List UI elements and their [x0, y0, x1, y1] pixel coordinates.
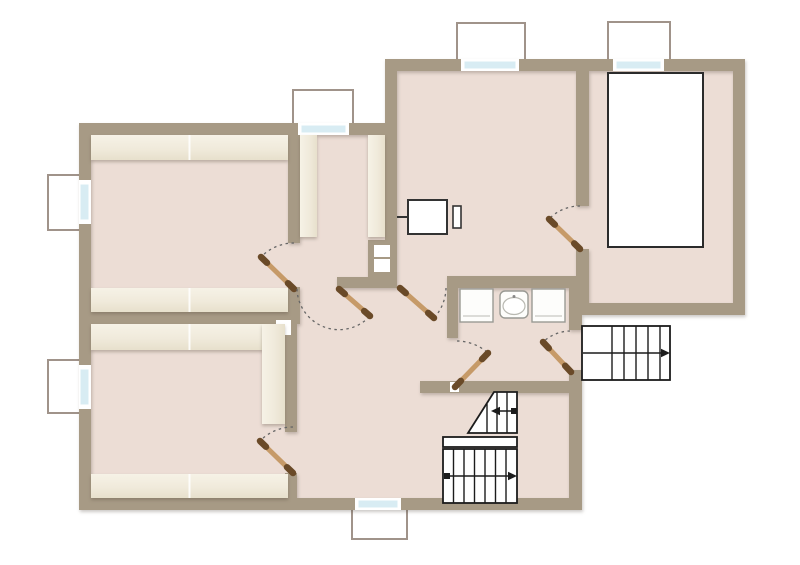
window-glass: [616, 61, 661, 69]
door-leaf-tip: [287, 467, 293, 473]
wall-middle-right-upper: [576, 71, 589, 206]
shelf-band-seam: [189, 288, 191, 312]
wall-hall-column-bottom: [337, 277, 397, 288]
door-leaf-tip: [482, 353, 488, 359]
window-top-middle: [461, 59, 519, 71]
wall-bedroom2-right: [285, 342, 297, 432]
door-leaf-tip: [549, 219, 555, 225]
shelf-band-seam: [189, 135, 191, 160]
window-well-top-right: [608, 22, 670, 60]
wall-bath-right: [569, 288, 582, 330]
door-leaf-tip: [339, 289, 345, 294]
utility-sink: [500, 291, 528, 318]
shelf-band-bedroom2-side: [262, 324, 285, 424]
door-leaf-tip: [574, 243, 580, 249]
shelf-band-bedroom2-top: [91, 324, 263, 350]
door-leaf-tip: [261, 257, 267, 263]
wall-exterior-right: [733, 59, 745, 315]
wall-hall-column-right: [385, 59, 397, 240]
door-leaf-tip: [400, 288, 406, 293]
floor-plan: [0, 0, 800, 565]
window-well-left-upper: [48, 175, 80, 230]
window-glass: [358, 500, 398, 508]
window-top-hall: [298, 123, 349, 135]
laundry-appliance-left: [460, 289, 493, 322]
window-well-top-hall: [293, 90, 353, 124]
window-glass: [80, 184, 89, 220]
window-glass: [80, 369, 89, 405]
wall-bath-left: [447, 288, 458, 338]
laundry-appliance-right: [532, 289, 565, 322]
shelf-band-seam: [189, 324, 191, 350]
chimney-flue: [374, 245, 390, 257]
door-leaf-tip: [455, 381, 461, 387]
window-left-upper: [79, 180, 91, 224]
shelf-band-hall-right: [368, 135, 385, 237]
floor-plan-canvas: [0, 0, 800, 565]
door-leaf-tip: [543, 342, 549, 348]
furnace-side-panel: [453, 206, 461, 228]
appliance-body: [460, 289, 493, 322]
window-well-left-lower: [48, 360, 80, 413]
window-glass: [464, 61, 516, 69]
wall-bath-top: [447, 276, 589, 288]
window-well-top-middle: [457, 23, 525, 60]
wall-hall-right: [569, 370, 582, 510]
upper-flight-start-dot: [511, 408, 517, 414]
appliance-body: [532, 289, 565, 322]
window-top-right: [613, 59, 664, 71]
window-bottom: [355, 498, 401, 510]
staircase-exterior: [582, 326, 670, 380]
wall-exterior-top-right-block: [385, 59, 745, 71]
door-leaf-tip: [565, 366, 571, 372]
table-fixture: [608, 73, 703, 247]
sink-basin: [503, 298, 525, 315]
window-well-bottom: [352, 509, 407, 539]
door-leaf-tip: [428, 313, 434, 318]
wall-between-bedrooms: [91, 312, 300, 324]
stair-landing: [443, 437, 517, 447]
sink-faucet: [513, 295, 516, 298]
shelf-band-seam: [189, 474, 191, 498]
door-leaf-tip: [260, 441, 266, 447]
wall-bedroom1-right: [288, 135, 300, 243]
shelf-band-hall-left: [300, 135, 317, 237]
wall-exterior-right-room-bottom: [576, 303, 745, 315]
window-glass: [301, 125, 346, 133]
window-left-lower: [79, 365, 91, 409]
door-leaf-tip: [288, 283, 294, 289]
furnace: [408, 200, 447, 234]
door-leaf-tip: [364, 311, 370, 316]
chimney-flue: [374, 259, 390, 272]
